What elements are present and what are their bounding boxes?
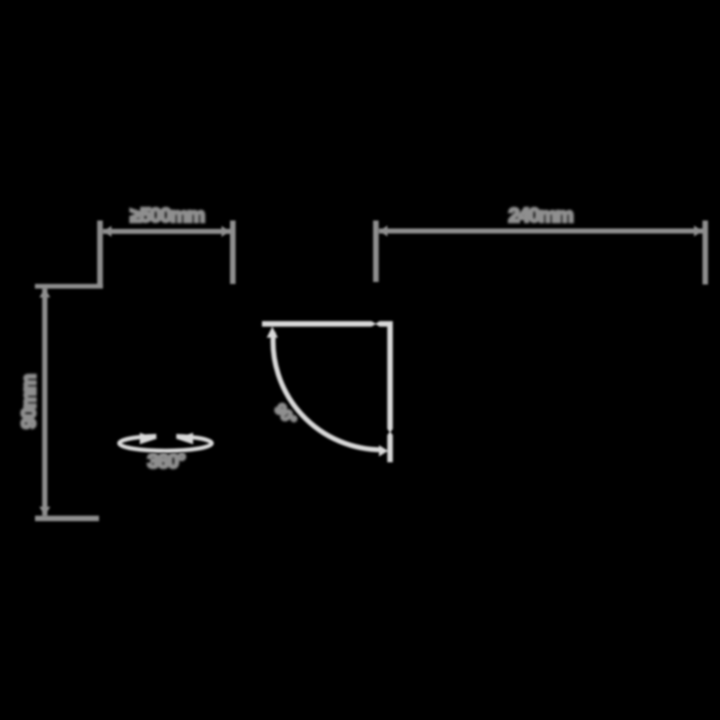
svg-text:360°: 360° <box>147 450 185 473</box>
svg-text:240mm: 240mm <box>508 204 572 227</box>
svg-text:90mm: 90mm <box>18 375 41 429</box>
svg-text:≥500mm: ≥500mm <box>130 204 204 227</box>
